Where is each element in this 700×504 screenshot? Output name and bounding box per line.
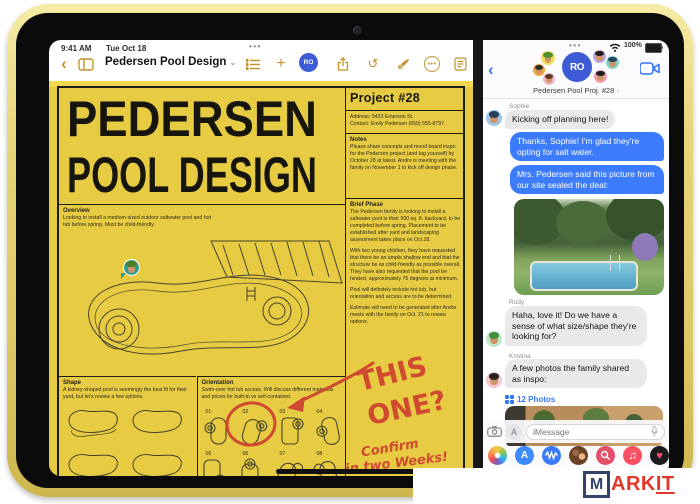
app-store-icon[interactable]: A	[515, 446, 534, 465]
ipad-bezel: 9:41 AM Tue Oct 18 ••• ‹ Pedersen Pool D…	[16, 13, 684, 488]
document-title-dropdown[interactable]: Pedersen Pool Design ⌄	[105, 56, 236, 68]
photo-grid-icon	[505, 395, 514, 404]
waveform-icon	[545, 451, 558, 460]
audio-app-icon[interactable]	[542, 446, 561, 465]
status-time: 9:41 AM	[61, 44, 91, 53]
message-bubble: Haha, love it! Do we have a sense of wha…	[505, 306, 647, 346]
doc-title-cell: PEDERSEN POOL DESIGN	[59, 88, 345, 204]
markit-logo-it: IT	[656, 473, 675, 496]
chevron-down-icon: ⌄	[230, 58, 237, 67]
collaborator-cursor-pointer	[121, 273, 126, 279]
diagram-number: 03	[280, 409, 286, 416]
pool-water	[530, 261, 638, 291]
back-button[interactable]: ‹	[57, 54, 71, 74]
sender-name: Rody	[509, 299, 524, 306]
avatar-monogram: RO	[304, 59, 314, 66]
front-camera-icon	[353, 26, 362, 35]
project-address: Address: 5433 Emerson St.	[350, 114, 461, 121]
watermark-strip: M ARK IT	[413, 468, 700, 504]
page: 9:41 AM Tue Oct 18 ••• ‹ Pedersen Pool D…	[0, 0, 700, 504]
message-input-bar: A	[483, 420, 669, 443]
brief-p1: The Pedersen family is looking to instal…	[350, 209, 461, 244]
list-icon	[246, 59, 260, 70]
doc-title-line2: POOL DESIGN	[67, 147, 317, 202]
markit-logo: M ARK IT	[583, 471, 675, 498]
chevron-right-icon: ›	[616, 86, 619, 95]
diagram-number: 02	[243, 409, 249, 416]
shape-cell: Shape A kidney-shaped pool is seemingly …	[59, 376, 196, 476]
group-logo-monogram: RO	[570, 62, 584, 73]
camera-button[interactable]	[487, 426, 502, 437]
imessage-text-field[interactable]	[533, 427, 651, 437]
ellipsis-icon: •••	[424, 56, 440, 72]
doc-title-line1: PEDERSEN	[67, 91, 317, 147]
project-contact: Contact: Emily Pedersen (650) 555-8797	[350, 121, 461, 128]
shape-text: A kidney-shaped pool is seemingly the be…	[63, 387, 192, 401]
overview-label: Overview	[63, 208, 341, 214]
group-logo-avatar: RO	[562, 52, 592, 82]
brief-p3: Pool will definitely include hot tub, bu…	[350, 287, 461, 301]
document-title: Pedersen Pool Design	[105, 56, 226, 68]
orientation-cell: Orientation Swim-over hot tub access. Wi…	[197, 376, 345, 476]
list-view-button[interactable]	[245, 54, 261, 74]
sidebar-toggle-button[interactable]	[77, 54, 95, 74]
diagram-number: 07	[280, 451, 286, 458]
music-app-icon[interactable]: ♫	[623, 446, 642, 465]
diagram-number: 04	[317, 409, 323, 416]
member-avatar	[593, 50, 606, 63]
search-images-icon[interactable]	[596, 446, 615, 465]
contact-cell: Address: 5433 Emerson St. Contact: Emily…	[346, 111, 465, 134]
sender-avatar	[486, 110, 502, 126]
member-avatar	[543, 73, 555, 85]
back-button[interactable]: ‹	[488, 60, 494, 80]
doc-title-art: PEDERSEN POOL DESIGN	[67, 90, 333, 202]
message-photo-pool[interactable]	[514, 199, 664, 295]
lavender-bush	[632, 233, 658, 261]
photos-app-icon[interactable]	[488, 446, 507, 465]
more-options-button[interactable]: •••	[423, 54, 441, 74]
diagram-number: 05	[206, 451, 212, 458]
freeform-canvas[interactable]: PEDERSEN POOL DESIGN Project #28 Address…	[49, 81, 473, 476]
group-avatar-cluster[interactable]: RO	[531, 48, 623, 86]
project-header-cell: Project #28	[346, 88, 465, 111]
imessage-apps-button[interactable]: A	[506, 424, 522, 440]
shape-options-sketch	[62, 403, 190, 476]
imessage-app-strip: A ♫ ♥	[483, 446, 669, 470]
overview-text: Looking to install a medium-sized outdoo…	[63, 215, 213, 229]
photos-link-label: 12 Photos	[517, 395, 555, 404]
share-icon	[337, 57, 349, 71]
split-view-divider[interactable]	[473, 40, 483, 476]
diagram-number: 06	[243, 451, 249, 458]
shape-label: Shape	[63, 380, 192, 386]
notes-cell: Notes Please share concepts and mood boa…	[346, 134, 465, 199]
ipad-screen: 9:41 AM Tue Oct 18 ••• ‹ Pedersen Pool D…	[49, 40, 669, 476]
group-name-button[interactable]: Pedersen Pool Proj. #28 ›	[483, 86, 669, 95]
markup-brush-button[interactable]	[395, 54, 411, 74]
tree-blob	[606, 199, 664, 241]
orientation-label: Orientation	[202, 380, 341, 386]
group-name: Pedersen Pool Proj. #28	[533, 86, 614, 95]
message-bubble: Kicking off planning here!	[505, 110, 615, 129]
messages-header: ••• 100% ‹	[483, 40, 669, 99]
pool-isometric-sketch	[61, 235, 343, 375]
overview-cell: Overview Looking to install a medium-siz…	[59, 204, 345, 376]
sender-avatar	[486, 372, 502, 388]
sender-name: Sophie	[509, 103, 529, 110]
notes-label: Notes	[350, 137, 461, 143]
battery-percent: 100%	[624, 42, 642, 49]
dictation-mic-icon[interactable]	[651, 426, 658, 437]
project-title: Project #28	[350, 91, 461, 105]
pane-menu-handle[interactable]: •••	[249, 42, 262, 51]
imessage-input[interactable]	[526, 424, 665, 440]
digital-touch-icon[interactable]: ♥	[650, 446, 669, 465]
document-icon	[454, 57, 467, 71]
ipad-device: 9:41 AM Tue Oct 18 ••• ‹ Pedersen Pool D…	[7, 4, 693, 497]
collaborator-avatar[interactable]: RO	[299, 53, 318, 72]
markit-logo-ark: ARK	[611, 473, 656, 496]
battery-icon	[645, 43, 662, 53]
photos-collection-link[interactable]: 12 Photos	[505, 395, 555, 404]
tree-blob	[556, 201, 610, 245]
share-button[interactable]	[335, 54, 351, 74]
facetime-video-button[interactable]	[640, 62, 660, 75]
pool-ladder	[610, 255, 620, 271]
battery-tip	[662, 46, 664, 49]
paintbrush-icon	[397, 58, 410, 71]
freeform-pane: 9:41 AM Tue Oct 18 ••• ‹ Pedersen Pool D…	[49, 40, 473, 476]
member-avatar	[606, 56, 619, 69]
messages-pane: ••• 100% ‹	[483, 40, 669, 476]
member-avatar	[594, 70, 607, 83]
message-bubble: Thanks, Sophie! I'm glad they're opting …	[510, 132, 664, 161]
diagram-number: 01	[206, 409, 212, 416]
sender-avatar	[486, 331, 502, 347]
notes-text: Please share concepts and mood board ins…	[350, 144, 461, 172]
message-bubble: Mrs. Pedersen said this picture from our…	[510, 165, 664, 194]
memoji-stickers-icon[interactable]	[569, 446, 588, 465]
member-avatar	[541, 51, 555, 65]
diagram-number: 08	[317, 451, 323, 458]
brief-label: Brief Phase	[350, 202, 461, 208]
sidebar-icon	[78, 58, 94, 71]
brief-p2: With two young children, they have reque…	[350, 248, 461, 283]
member-avatar	[533, 64, 545, 76]
magnifier-icon	[600, 450, 611, 461]
markit-logo-m-box: M	[583, 471, 610, 498]
brief-cell: Brief Phase The Pedersen family is looki…	[346, 199, 465, 376]
orientation-text: Swim-over hot tub access. Will discuss d…	[202, 387, 341, 401]
undo-button[interactable]: ↺	[365, 54, 381, 74]
orientation-diagrams-row1	[202, 416, 344, 446]
notes-button[interactable]	[451, 54, 469, 74]
status-date: Tue Oct 18	[106, 44, 146, 53]
add-item-button[interactable]: +	[273, 54, 289, 74]
brief-p4: Estimate will need to be generated after…	[350, 305, 461, 326]
message-bubble: A few photos the family shared as inspo:	[505, 359, 647, 388]
